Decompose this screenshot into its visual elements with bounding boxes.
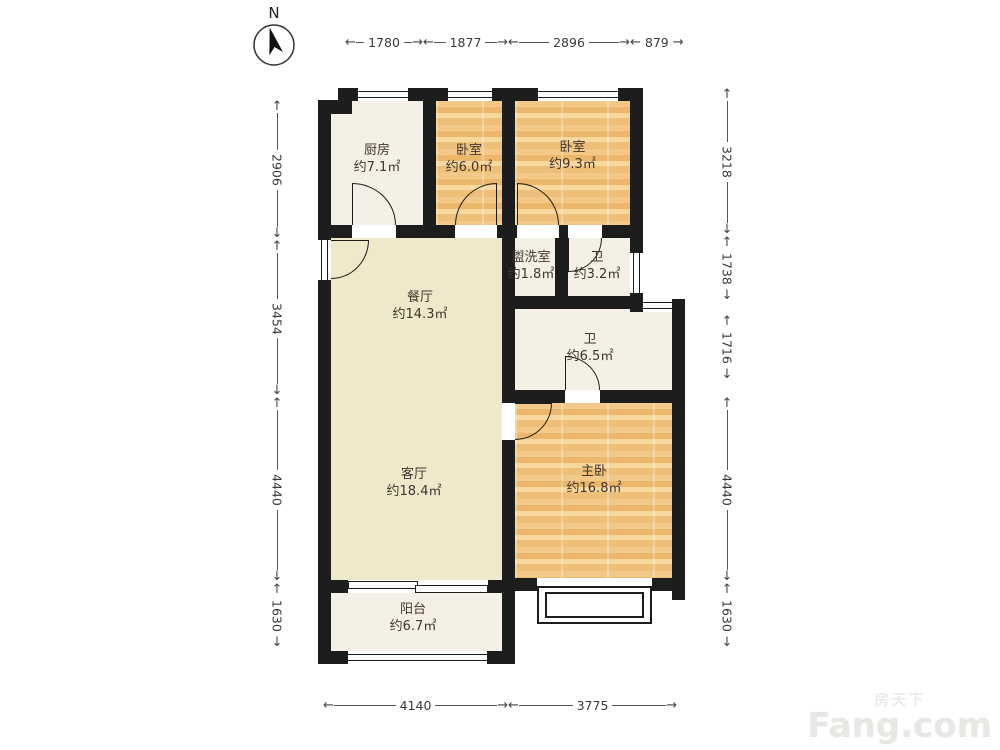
dim-value: 3218: [720, 142, 735, 182]
balcony-window: [348, 651, 487, 664]
wall: [423, 101, 436, 225]
bedroom-mid-window: [538, 88, 618, 101]
dim-value: 1630: [720, 596, 735, 636]
dim-top-3: ← 879 →: [630, 34, 678, 50]
room-area: 约6.5㎡: [520, 349, 660, 366]
wall: [502, 390, 565, 403]
dim-right-3: ↑ 4440 ↓: [719, 397, 735, 583]
wall: [502, 296, 643, 309]
room-area: 约18.4㎡: [344, 484, 484, 501]
bay-window-inner: [545, 592, 644, 618]
entry-threshold: [318, 240, 331, 280]
room-area: 约6.7㎡: [343, 619, 483, 636]
arrow-left-icon: ←: [323, 699, 334, 712]
room-bedroom-small: 卧室 约6.0㎡: [436, 143, 502, 177]
dim-left-0: ↑ 2906 ↓: [269, 100, 285, 240]
wall: [515, 578, 537, 591]
wall: [318, 101, 331, 240]
dim-top-2: ← 2896 →: [508, 34, 630, 50]
dim-value: 2896: [549, 35, 589, 50]
bath-large-window: [643, 299, 672, 312]
wall: [559, 225, 568, 238]
arrow-up-icon: ↑: [722, 88, 733, 101]
bedroom-small-window: [448, 88, 492, 101]
arrow-up-icon: ↑: [722, 315, 733, 328]
room-bath-large: 卫 约6.5㎡: [520, 332, 660, 366]
dim-value: 2906: [270, 150, 285, 190]
room-area: 约16.8㎡: [524, 481, 664, 498]
room-area: 约14.3㎡: [350, 307, 490, 324]
dim-value: 4140: [396, 698, 436, 713]
dim-left-1: ↑ 3454 ↓: [269, 240, 285, 397]
wall: [630, 88, 643, 253]
arrow-up-icon: ↑: [272, 397, 283, 410]
arrow-left-icon: ←: [508, 699, 519, 712]
watermark-en: Fang.com: [807, 710, 992, 742]
arrow-up-icon: ↑: [272, 240, 283, 253]
sliding-door-panel: [415, 585, 488, 593]
arrow-up-icon: ↑: [272, 583, 283, 596]
arrow-up-icon: ↑: [272, 100, 283, 113]
dim-top-1: ← 1877 →: [423, 34, 508, 50]
room-area: 约7.1㎡: [331, 160, 423, 177]
dim-right-1: ↑ 1738 ↓: [719, 236, 735, 315]
room-area: 约6.0㎡: [436, 160, 502, 177]
room-area: 约1.8㎡: [496, 267, 566, 284]
room-master: 主卧 约16.8㎡: [524, 464, 664, 498]
dim-bottom-0: ← 4140 →: [323, 697, 508, 713]
floorplan: 厨房 约7.1㎡ 卧室 约6.0㎡ 卧室 约9.3㎡ 盥洗室 约1.8㎡ 卫 约…: [0, 0, 1000, 750]
arrow-left-icon: ←: [345, 36, 356, 49]
dim-right-4: ↑ 1630 ↓: [719, 583, 735, 662]
arrow-down-icon: ↓: [722, 289, 733, 302]
dim-value: 1630: [270, 596, 285, 636]
wall: [487, 651, 515, 664]
sliding-door-panel: [348, 581, 418, 589]
arrow-down-icon: ↓: [272, 636, 283, 649]
arrow-right-icon: →: [619, 36, 630, 49]
room-name: 阳台: [343, 602, 483, 619]
room-name: 卫: [520, 332, 660, 349]
compass-icon: [251, 22, 297, 68]
dim-value: 1780: [364, 35, 404, 50]
wall: [488, 580, 515, 593]
room-bath-small: 卫 约3.2㎡: [562, 250, 632, 284]
dim-right-0: ↑ 3218 ↓: [719, 88, 735, 236]
room-area: 约3.2㎡: [562, 267, 632, 284]
dim-value: 3775: [573, 698, 613, 713]
room-name: 卧室: [515, 140, 630, 157]
dim-value: 879: [641, 35, 673, 50]
arrow-right-icon: →: [497, 699, 508, 712]
watermark: 房天下 Fang.com: [807, 689, 992, 742]
room-name: 盥洗室: [496, 250, 566, 267]
room-name: 客厅: [344, 467, 484, 484]
room-area: 约9.3㎡: [515, 157, 630, 174]
room-dining: 餐厅 约14.3㎡: [350, 290, 490, 324]
arrow-down-icon: ↓: [722, 636, 733, 649]
dim-value: 1716: [720, 328, 735, 368]
room-washroom: 盥洗室 约1.8㎡: [496, 250, 566, 284]
wall: [600, 390, 685, 403]
north-label: N: [250, 4, 298, 22]
arrow-down-icon: ↓: [722, 368, 733, 381]
dim-bottom-1: ← 3775 →: [508, 697, 677, 713]
arrow-up-icon: ↑: [722, 236, 733, 249]
room-name: 厨房: [331, 143, 423, 160]
dim-left-2: ↑ 4440 ↓: [269, 397, 285, 583]
arrow-up-icon: ↑: [722, 583, 733, 596]
arrow-left-icon: ←: [630, 36, 641, 49]
arrow-left-icon: ←: [508, 36, 519, 49]
arrow-right-icon: →: [412, 36, 423, 49]
arrow-left-icon: ←: [423, 36, 434, 49]
wall: [318, 651, 348, 664]
dim-top-0: ← 1780 →: [345, 34, 423, 50]
room-kitchen: 厨房 约7.1㎡: [331, 143, 423, 177]
arrow-right-icon: →: [497, 36, 508, 49]
room-balcony: 阳台 约6.7㎡: [343, 602, 483, 636]
arrow-right-icon: →: [673, 36, 684, 49]
wall: [396, 225, 455, 238]
wall: [652, 578, 685, 591]
dim-value: 1738: [720, 249, 735, 289]
arrow-right-icon: →: [666, 699, 677, 712]
room-name: 主卧: [524, 464, 664, 481]
room-living: 客厅 约18.4㎡: [344, 467, 484, 501]
dim-value: 4440: [720, 470, 735, 510]
wall: [318, 280, 331, 664]
north-compass: N: [250, 4, 298, 72]
wall: [318, 580, 348, 593]
wall: [502, 101, 515, 225]
room-name: 卫: [562, 250, 632, 267]
room-name: 餐厅: [350, 290, 490, 307]
room-bedroom-mid: 卧室 约9.3㎡: [515, 140, 630, 174]
arrow-up-icon: ↑: [722, 397, 733, 410]
wall: [502, 440, 515, 664]
room-name: 卧室: [436, 143, 502, 160]
wall: [672, 299, 685, 600]
dim-value: 3454: [270, 299, 285, 339]
dim-left-3: ↑ 1630 ↓: [269, 583, 285, 662]
dim-value: 1877: [446, 35, 486, 50]
kitchen-window: [358, 88, 408, 101]
wall: [318, 225, 352, 238]
dim-value: 4440: [270, 470, 285, 510]
dim-right-2: ↑ 1716 ↓: [719, 315, 735, 397]
